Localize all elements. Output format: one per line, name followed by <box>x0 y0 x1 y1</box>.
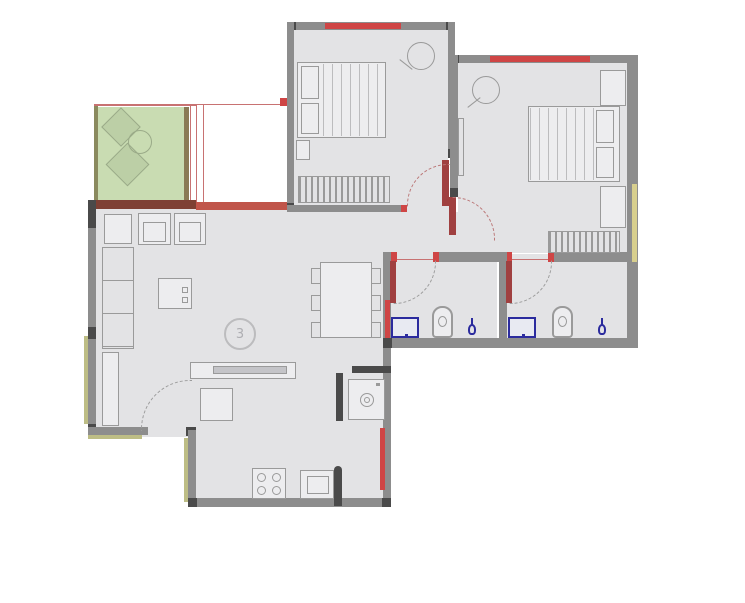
balcony-bottom-wall <box>92 200 196 209</box>
kitchen-left-outer-strip <box>184 438 188 502</box>
tv <box>213 366 287 374</box>
ceiling-fan-label-icon: 3 <box>224 318 256 350</box>
wall-corner <box>450 188 458 197</box>
pillow <box>596 110 614 143</box>
floor-plan: 3 <box>0 0 745 603</box>
dining-chair <box>371 295 381 311</box>
tap-icon <box>468 324 476 335</box>
bedroom2-window <box>490 56 590 62</box>
wc-bowl <box>558 316 567 327</box>
center-table <box>158 278 192 309</box>
left-outer-wall <box>88 200 96 435</box>
kitchen-window <box>380 428 385 490</box>
corner-table <box>104 214 132 244</box>
washing-machine-icon <box>348 379 385 420</box>
bathroom1-threshold <box>397 259 433 260</box>
entry-bottom-wall <box>88 427 148 435</box>
burner <box>257 486 266 495</box>
left-wall-window-strip <box>84 336 88 424</box>
sink-basin <box>307 476 329 494</box>
pillow <box>596 147 614 178</box>
bath-bottom-wall <box>383 338 638 348</box>
balcony-planter-circle <box>128 130 152 154</box>
kitchen-sink-icon <box>300 470 334 499</box>
bedroom1-wardrobe <box>298 176 390 203</box>
utility-wall-stub-left <box>336 373 343 421</box>
dining-chair <box>311 322 321 338</box>
terrace-outline-left-line <box>190 104 191 202</box>
bathroom1-wall-vent <box>385 300 390 338</box>
terrace-bottom-wall <box>196 202 290 210</box>
bedroom1-left-wall <box>287 22 294 212</box>
fan-label-text: 3 <box>236 327 244 342</box>
dining-chair <box>311 295 321 311</box>
center-table-item <box>182 297 188 303</box>
bedroom2-bedside-table <box>600 186 626 228</box>
bedroom1-bottom-wall <box>287 205 407 212</box>
wall-corner <box>382 498 391 507</box>
armchair <box>138 213 171 245</box>
balcony-left-border <box>94 104 98 201</box>
basin-drain <box>405 334 408 337</box>
bedroom2-left-wall <box>450 55 458 197</box>
bedroom2-wall-shelf <box>458 118 464 176</box>
bedroom1-mattress-stripes <box>323 64 384 136</box>
dining-chair <box>311 268 321 284</box>
wc-icon <box>432 306 453 338</box>
wc-icon <box>552 306 573 338</box>
armchair-seat <box>179 222 201 242</box>
armchair-seat <box>143 222 166 242</box>
pillow <box>301 66 319 99</box>
bedroom2-mattress-stripes <box>530 108 594 180</box>
bedroom2-bedside-table <box>600 70 626 106</box>
center-table-item <box>182 287 188 293</box>
pillow <box>301 103 319 134</box>
wall-corner <box>383 338 392 348</box>
kitchen-left-wall <box>188 430 196 507</box>
bedroom1-left-window-tick <box>280 98 287 106</box>
tap-icon <box>598 324 606 335</box>
wall-corner <box>188 498 197 507</box>
entry-wall-outer-strip <box>88 435 142 439</box>
basin-drain <box>522 334 525 337</box>
bathroom2-threshold <box>512 259 548 260</box>
utility-wall-stub-top <box>352 366 391 373</box>
burner <box>272 473 281 482</box>
washer-drum-inner <box>364 397 370 403</box>
dining-chair <box>371 268 381 284</box>
balcony-right-border <box>184 107 189 200</box>
bedroom1-window <box>325 23 401 29</box>
hob-icon <box>252 468 286 499</box>
tv-side-cabinet <box>200 388 233 421</box>
bath-top-wall-seg <box>548 252 627 262</box>
kitchen-partition-stub <box>334 466 342 506</box>
terrace-inner-line <box>203 104 204 203</box>
bedroom2-wardrobe <box>548 231 620 253</box>
armchair <box>174 213 206 245</box>
shoe-rack <box>102 352 119 426</box>
ceiling-fan-icon <box>407 42 435 70</box>
open-terrace <box>196 104 290 203</box>
burner <box>257 473 266 482</box>
kitchen-bottom-wall <box>188 498 391 507</box>
washbasin-icon <box>391 317 419 338</box>
kitchen-floor <box>188 430 388 505</box>
dining-table <box>320 262 372 338</box>
bedroom2-side-window <box>632 184 637 262</box>
bedroom1-bedside-table <box>296 140 310 160</box>
washbasin-icon <box>508 317 536 338</box>
passage-floor <box>390 212 458 256</box>
dining-chair <box>371 322 381 338</box>
wall-segment-dark <box>88 327 96 339</box>
burner <box>272 486 281 495</box>
wall-corner <box>88 200 96 228</box>
washer-knob <box>376 383 380 386</box>
sofa <box>102 247 134 349</box>
bedroom1-door-frame <box>401 205 407 212</box>
wc-bowl <box>438 316 447 327</box>
